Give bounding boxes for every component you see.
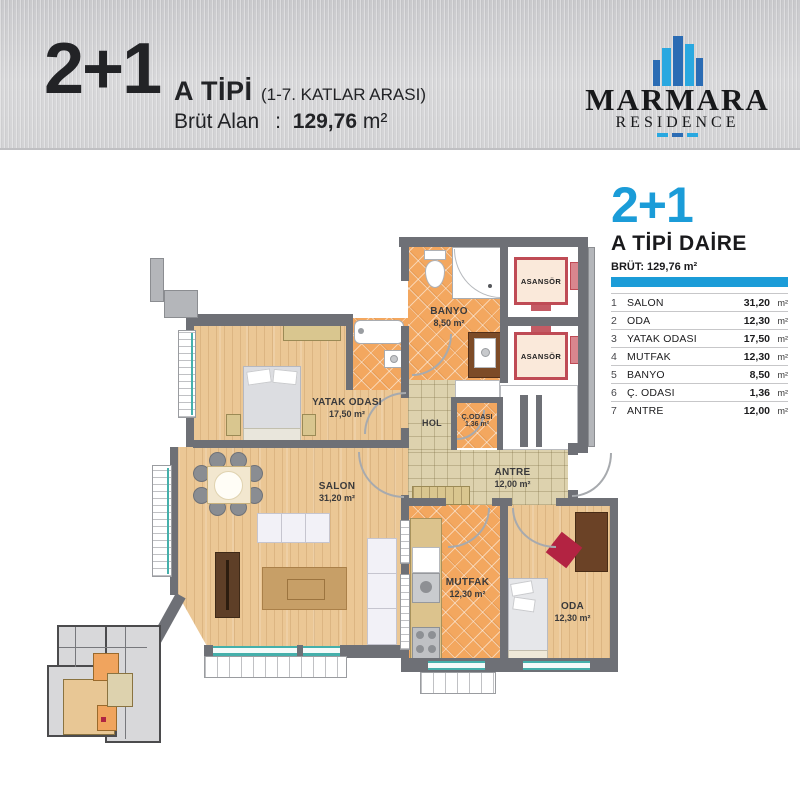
row-number: 3	[611, 333, 627, 345]
legend-room-table: 1 SALON 31,20 m² 2 ODA 12,30 m² 3 YATAK …	[611, 293, 788, 419]
window-blind	[400, 520, 410, 564]
elevator-2: ASANSÖR	[514, 332, 568, 380]
room-label-c-odasi: Ç.ODASI 1,36 m²	[452, 412, 502, 429]
unit-legend: 2+1 A TİPİ DAİRE BRÜT: 129,76 m² 1 SALON…	[611, 180, 788, 419]
logo-dash	[687, 133, 698, 137]
row-room-name: ANTRE	[627, 405, 736, 417]
row-room-name: BANYO	[627, 369, 736, 381]
wall	[340, 645, 408, 658]
table-row: 1 SALON 31,20 m²	[611, 293, 788, 311]
window	[428, 661, 485, 670]
row-unit: m²	[770, 334, 788, 344]
room-name: HOL	[412, 418, 452, 429]
room-label-hol: HOL	[412, 418, 452, 429]
elevator-label: ASANSÖR	[521, 352, 561, 361]
building-bar	[662, 48, 671, 86]
row-room-name: MUTFAK	[627, 351, 736, 363]
sofa-cushion-line	[281, 514, 282, 542]
table-row: 2 ODA 12,30 m²	[611, 311, 788, 329]
window-bay	[178, 330, 196, 418]
room-name: SALON	[292, 481, 382, 493]
burner	[416, 631, 424, 639]
row-area: 12,30	[736, 315, 770, 327]
fridge	[412, 547, 440, 573]
burner	[428, 645, 436, 653]
logo-name: MARMARA	[585, 82, 770, 118]
table-row: 7 ANTRE 12,00 m²	[611, 401, 788, 419]
row-room-name: YATAK ODASI	[627, 333, 736, 345]
window-glass	[191, 333, 193, 415]
row-area: 12,00	[736, 405, 770, 417]
logo-dash	[657, 133, 668, 137]
row-number: 6	[611, 387, 627, 399]
exterior-ledge	[150, 258, 164, 302]
marmara-residence-logo: MARMARA RESIDENCE	[585, 34, 770, 138]
row-area: 31,20	[736, 297, 770, 309]
room-area: 12,30 m²	[425, 589, 510, 600]
keyplan-line	[75, 627, 76, 667]
legend-gross: BRÜT: 129,76 m²	[611, 261, 788, 273]
row-room-name: ODA	[627, 315, 736, 327]
wall	[401, 247, 409, 281]
wall	[451, 397, 503, 403]
table-row: 5 BANYO 8,50 m²	[611, 365, 788, 383]
window	[523, 661, 590, 670]
shaft-column	[536, 395, 542, 447]
logo-dash	[672, 133, 683, 137]
floor-hol	[408, 380, 455, 450]
wall	[492, 498, 512, 506]
room-name: MUTFAK	[425, 577, 510, 589]
sink-basin	[390, 355, 398, 363]
room-name: YATAK ODASI	[282, 397, 412, 409]
room-name: BANYO	[409, 306, 489, 318]
room-label-banyo: BANYO 8,50 m²	[409, 306, 489, 329]
table-row: 6 Ç. ODASI 1,36 m²	[611, 383, 788, 401]
wall	[508, 317, 580, 326]
wall	[556, 498, 618, 506]
row-unit: m²	[770, 298, 788, 308]
tub-faucet	[358, 328, 364, 334]
wall	[346, 314, 353, 390]
wall	[610, 498, 618, 672]
room-area: 1,36 m²	[452, 421, 502, 429]
gross-unit: m²	[363, 110, 388, 133]
sofa	[367, 538, 397, 645]
row-unit: m²	[770, 352, 788, 362]
shower-drain	[488, 284, 492, 288]
building-bar	[673, 36, 683, 86]
header-apartment-type: 2+1	[44, 28, 160, 110]
wall	[186, 314, 353, 326]
row-room-name: SALON	[627, 297, 736, 309]
elevator-label: ASANSÖR	[521, 277, 561, 286]
window	[303, 646, 340, 656]
door-arc-entry	[572, 453, 612, 497]
sofa-cushion-line	[368, 608, 396, 609]
table-row: 3 YATAK ODASI 17,50 m²	[611, 329, 788, 347]
elevator-1: ASANSÖR	[514, 257, 568, 305]
table-centerpiece	[214, 471, 243, 500]
keyplan-red-dot	[101, 717, 106, 722]
exterior-trim	[588, 247, 595, 447]
burner	[416, 645, 424, 653]
room-area: 17,50 m²	[282, 409, 412, 420]
row-unit: m²	[770, 406, 788, 416]
row-area: 1,36	[736, 387, 770, 399]
keyplan-line	[59, 647, 147, 648]
sofa	[257, 513, 330, 543]
header-gross-area: Brüt Alan : 129,76 m²	[174, 110, 387, 134]
keyplan-unit-highlight	[97, 705, 117, 731]
wall	[193, 440, 409, 448]
row-room-name: Ç. ODASI	[627, 387, 736, 399]
logo-subname: RESIDENCE	[585, 114, 770, 132]
room-label-salon: SALON 31,20 m²	[292, 481, 382, 504]
legend-apartment-type: 2+1	[611, 180, 788, 230]
window	[213, 646, 297, 656]
elevator-counterweight	[531, 305, 551, 311]
row-number: 7	[611, 405, 627, 417]
keyplan-unit-highlight	[107, 673, 133, 707]
wall	[578, 237, 588, 453]
gross-separator: :	[275, 110, 281, 133]
row-area: 12,30	[736, 351, 770, 363]
tv-screen	[226, 560, 229, 610]
legend-accent-bar	[611, 277, 788, 287]
room-label-oda: ODA 12,30 m²	[530, 601, 615, 624]
room-area: 8,50 m²	[409, 318, 489, 329]
room-label-mutfak: MUTFAK 12,30 m²	[425, 577, 510, 600]
row-number: 1	[611, 297, 627, 309]
row-number: 2	[611, 315, 627, 327]
room-label-yatak: YATAK ODASI 17,50 m²	[282, 397, 412, 420]
gross-label: Brüt Alan	[174, 110, 259, 133]
header-subtitle: (1-7. KATLAR ARASI)	[261, 85, 426, 104]
room-area: 12,00 m²	[470, 479, 555, 490]
sofa-cushion-line	[368, 573, 396, 574]
window-ledge	[420, 672, 496, 694]
room-area: 12,30 m²	[530, 613, 615, 624]
table-row: 4 MUTFAK 12,30 m²	[611, 347, 788, 365]
room-area: 31,20 m²	[292, 493, 382, 504]
nightstand	[226, 414, 241, 436]
pillow	[272, 369, 297, 385]
wall	[500, 247, 508, 383]
window-ledge	[204, 656, 347, 678]
gross-value: 129,76	[293, 110, 357, 133]
rug-inner-line	[287, 579, 325, 600]
wall	[401, 326, 409, 398]
room-name: ANTRE	[470, 467, 555, 479]
wall	[399, 237, 588, 247]
wall	[408, 498, 446, 506]
window-blind	[400, 574, 410, 650]
building-icon	[585, 34, 770, 86]
logo-dashes	[585, 133, 770, 137]
row-area: 8,50	[736, 369, 770, 381]
row-unit: m²	[770, 316, 788, 326]
shaft-column	[520, 395, 528, 447]
desk	[575, 512, 608, 572]
row-unit: m²	[770, 370, 788, 380]
room-name: ODA	[530, 601, 615, 613]
row-unit: m²	[770, 388, 788, 398]
burner	[428, 631, 436, 639]
header-title-row: A TİPİ (1-7. KATLAR ARASI)	[174, 76, 426, 107]
room-label-antre: ANTRE 12,00 m²	[470, 467, 555, 490]
row-number: 5	[611, 369, 627, 381]
keyplan-thumbnail	[45, 617, 163, 755]
exterior-ledge	[164, 290, 198, 318]
brochure-page: 2+1 A TİPİ (1-7. KATLAR ARASI) Brüt Alan…	[0, 0, 800, 800]
row-number: 4	[611, 351, 627, 363]
legend-title: A TİPİ DAİRE	[611, 232, 788, 256]
sofa-cushion-line	[305, 514, 306, 542]
row-area: 17,50	[736, 333, 770, 345]
header-banner: 2+1 A TİPİ (1-7. KATLAR ARASI) Brüt Alan…	[0, 0, 800, 150]
building-bar	[685, 44, 694, 86]
header-title: A TİPİ	[174, 76, 253, 106]
room-name: Ç.ODASI	[452, 412, 502, 421]
window-bay	[152, 465, 172, 577]
sink-basin	[481, 348, 490, 357]
toilet-tank	[424, 250, 446, 260]
window-glass	[167, 468, 169, 574]
